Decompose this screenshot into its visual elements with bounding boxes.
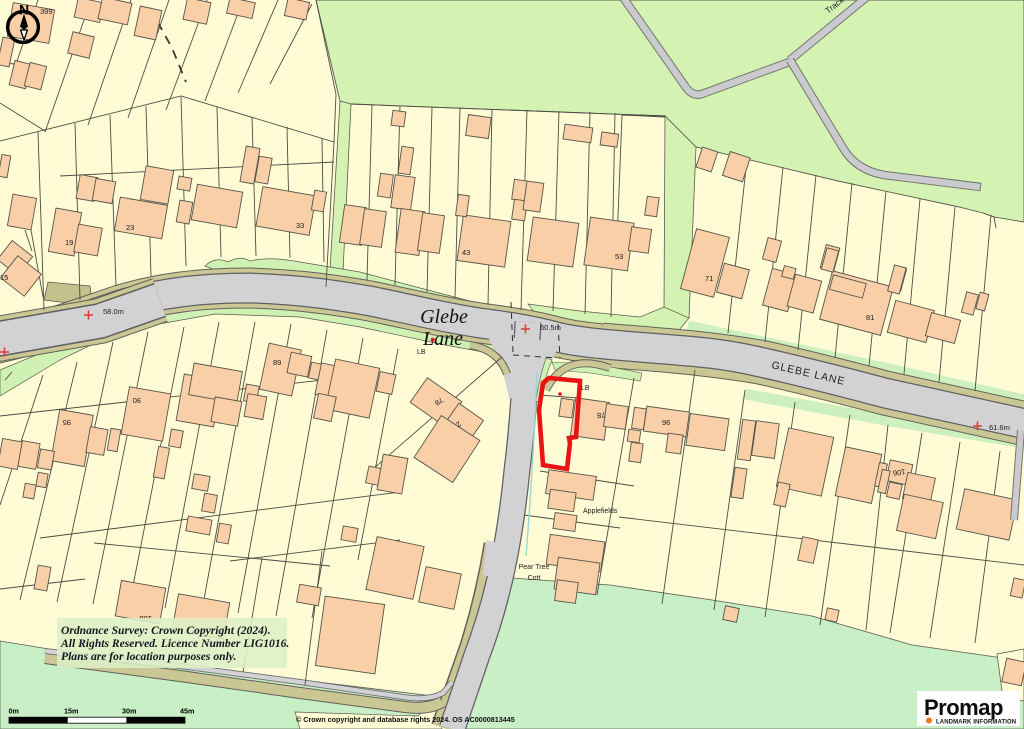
svg-text:Glebe: Glebe (420, 306, 468, 328)
svg-text:30m: 30m (122, 707, 136, 716)
svg-text:© Crown copyright and database: © Crown copyright and database rights 20… (296, 715, 515, 724)
svg-text:Cott: Cott (528, 575, 541, 582)
svg-text:95: 95 (63, 418, 71, 427)
svg-text:33: 33 (296, 221, 304, 230)
svg-text:23: 23 (126, 223, 134, 232)
svg-text:90: 90 (133, 396, 141, 405)
svg-text:LB: LB (417, 349, 426, 356)
svg-text:Lane: Lane (422, 328, 463, 350)
svg-text:Plans are for location purpose: Plans are for location purposes only. (61, 650, 236, 663)
svg-text:43: 43 (462, 248, 470, 257)
svg-text:Ordnance Survey: Crown Copyrig: Ordnance Survey: Crown Copyright (2024). (61, 624, 271, 637)
svg-text:Applefields: Applefields (583, 508, 618, 515)
svg-text:96: 96 (662, 418, 670, 427)
svg-text:LB: LB (581, 385, 590, 392)
svg-text:15: 15 (0, 273, 8, 282)
svg-text:71: 71 (705, 274, 713, 283)
svg-text:81: 81 (866, 313, 874, 322)
svg-text:60.5m: 60.5m (540, 323, 561, 332)
svg-text:61.6m: 61.6m (989, 423, 1010, 432)
svg-text:Pear Tree: Pear Tree (519, 564, 550, 571)
svg-text:Promap: Promap (924, 695, 1003, 720)
svg-text:106: 106 (892, 467, 906, 478)
svg-text:15m: 15m (64, 707, 78, 716)
svg-text:58.0m: 58.0m (103, 307, 124, 316)
svg-text:45m: 45m (180, 707, 194, 716)
svg-text:78: 78 (596, 410, 606, 420)
svg-text:0m: 0m (9, 707, 19, 716)
svg-text:89: 89 (273, 358, 281, 367)
svg-text:All Rights Reserved. Licence N: All Rights Reserved. Licence Number LIG1… (60, 637, 289, 650)
svg-text:53: 53 (615, 252, 623, 261)
svg-text:N: N (19, 2, 29, 18)
svg-text:399: 399 (40, 7, 53, 16)
svg-text:LANDMARK INFORMATION: LANDMARK INFORMATION (936, 720, 1016, 726)
svg-text:19: 19 (65, 238, 73, 247)
